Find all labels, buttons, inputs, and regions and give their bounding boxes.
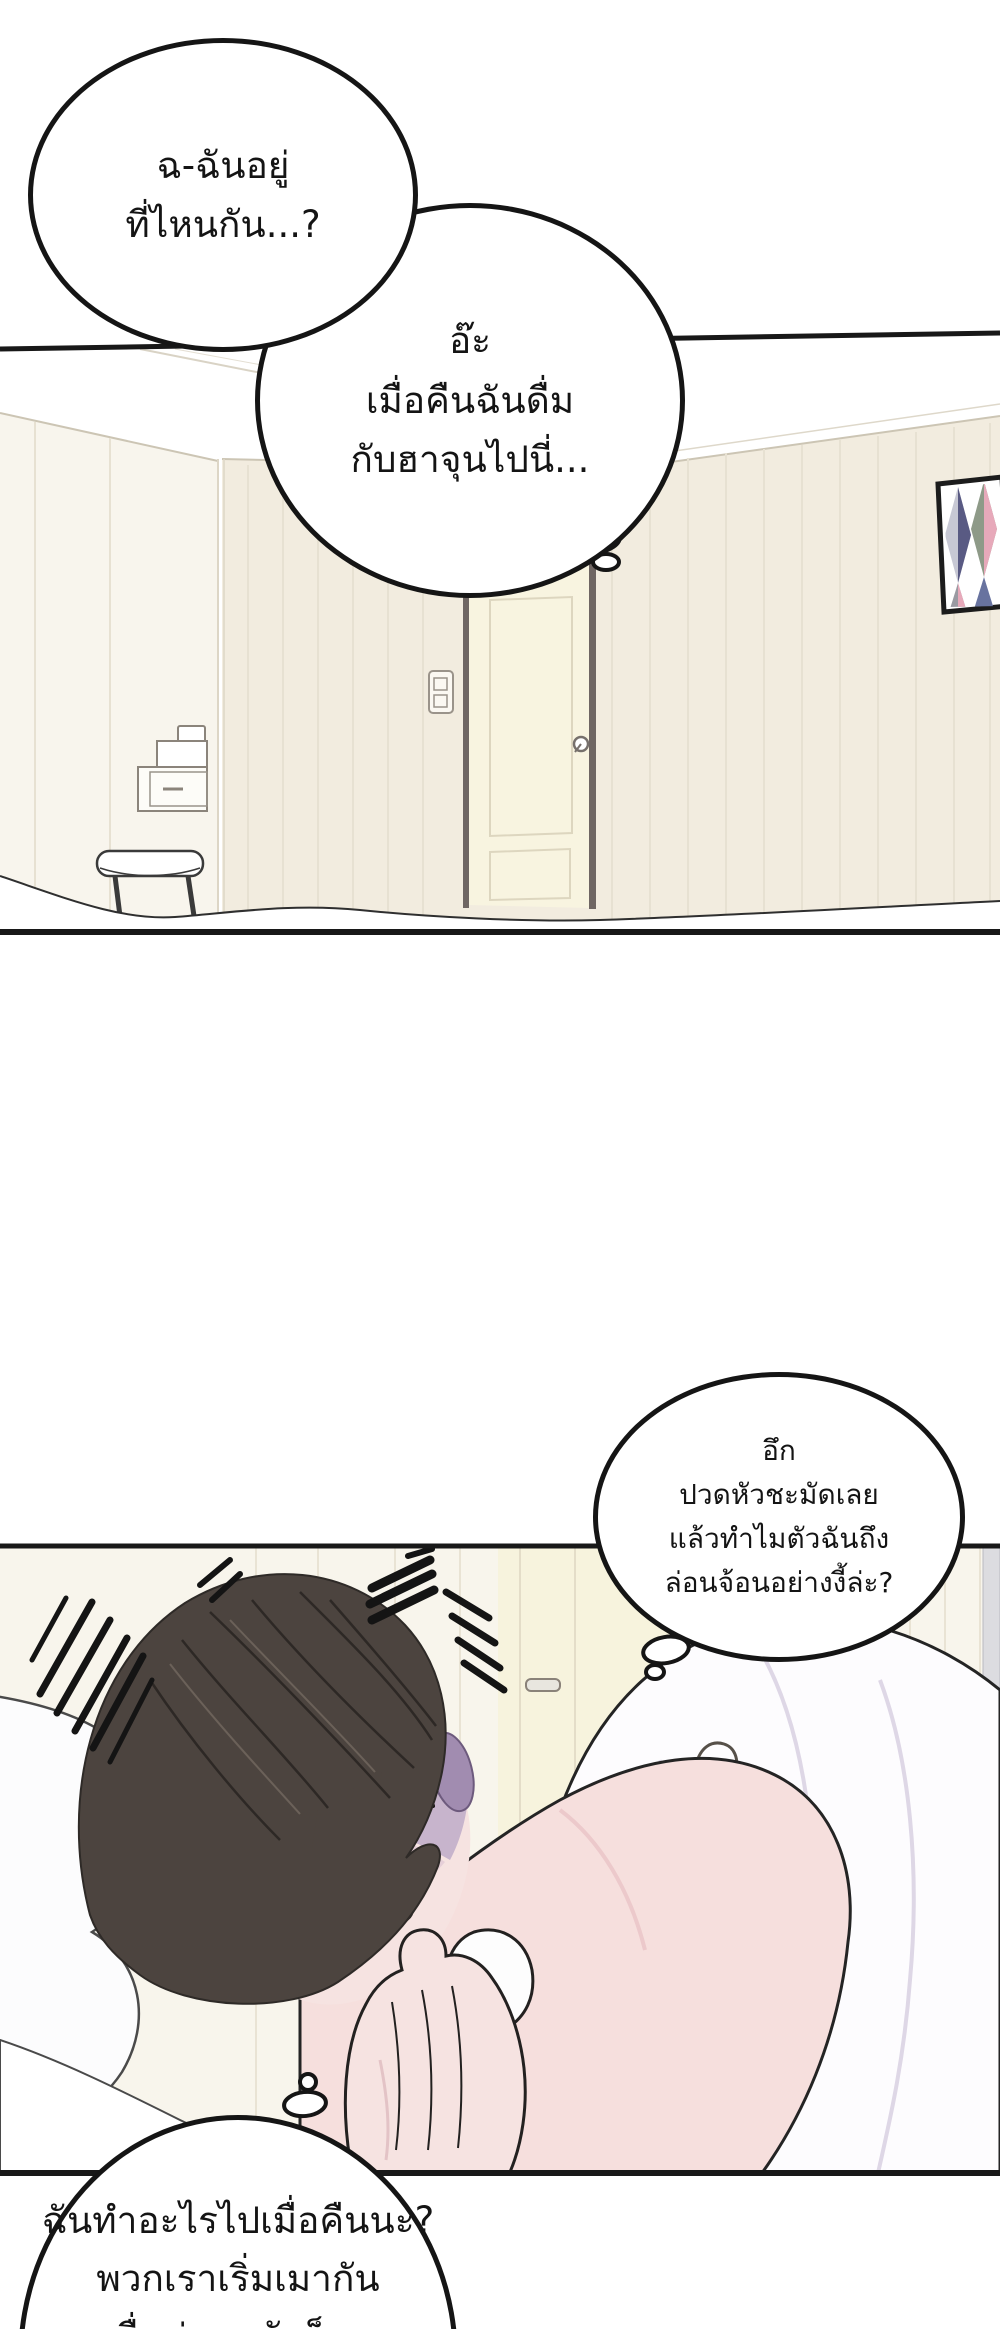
bubble3-line2: ปวดหัวชะมัดเลย: [679, 1473, 879, 1517]
comic-page: อ๊ะ เมื่อคืนฉันดื่ม กับฮาจุนไปนี่... ฉ-ฉ…: [0, 0, 1000, 2329]
thought-bubble-1: ฉ-ฉันอยู่ ที่ไหนกัน...?: [28, 38, 418, 352]
bubble4-line1: ฉันทำอะไรไปเมื่อคืนนะ?: [42, 2192, 434, 2250]
thought-bubble-3: อึก ปวดหัวชะมัดเลย แล้วทำไมตัวฉันถึง ล่อ…: [593, 1372, 965, 1662]
bubble2-line2: เมื่อคืนฉันดื่ม: [366, 371, 574, 431]
door-handle: [526, 1679, 560, 1691]
light-switch: [429, 671, 453, 713]
bubble4-line3: ดื่มต่อจนดับก็...: [115, 2309, 362, 2329]
bubble2-line1: อ๊ะ: [449, 311, 491, 371]
bubble2-line3: กับฮาจุนไปนี่...: [351, 430, 590, 490]
curtain-strip: [983, 1548, 1000, 1698]
bubble3-line3: แล้วทำไมตัวฉันถึง: [669, 1517, 889, 1561]
bubble1-line2: ที่ไหนกัน...?: [125, 195, 320, 254]
bubble1-line1: ฉ-ฉันอยู่: [157, 136, 290, 195]
bubble3-line1: อึก: [762, 1429, 796, 1473]
bubble3-line4: ล่อนจ้อนอย่างงี้ล่ะ?: [665, 1561, 894, 1605]
bubble4-line2: พวกเราเริ่มเมากัน: [96, 2250, 379, 2308]
